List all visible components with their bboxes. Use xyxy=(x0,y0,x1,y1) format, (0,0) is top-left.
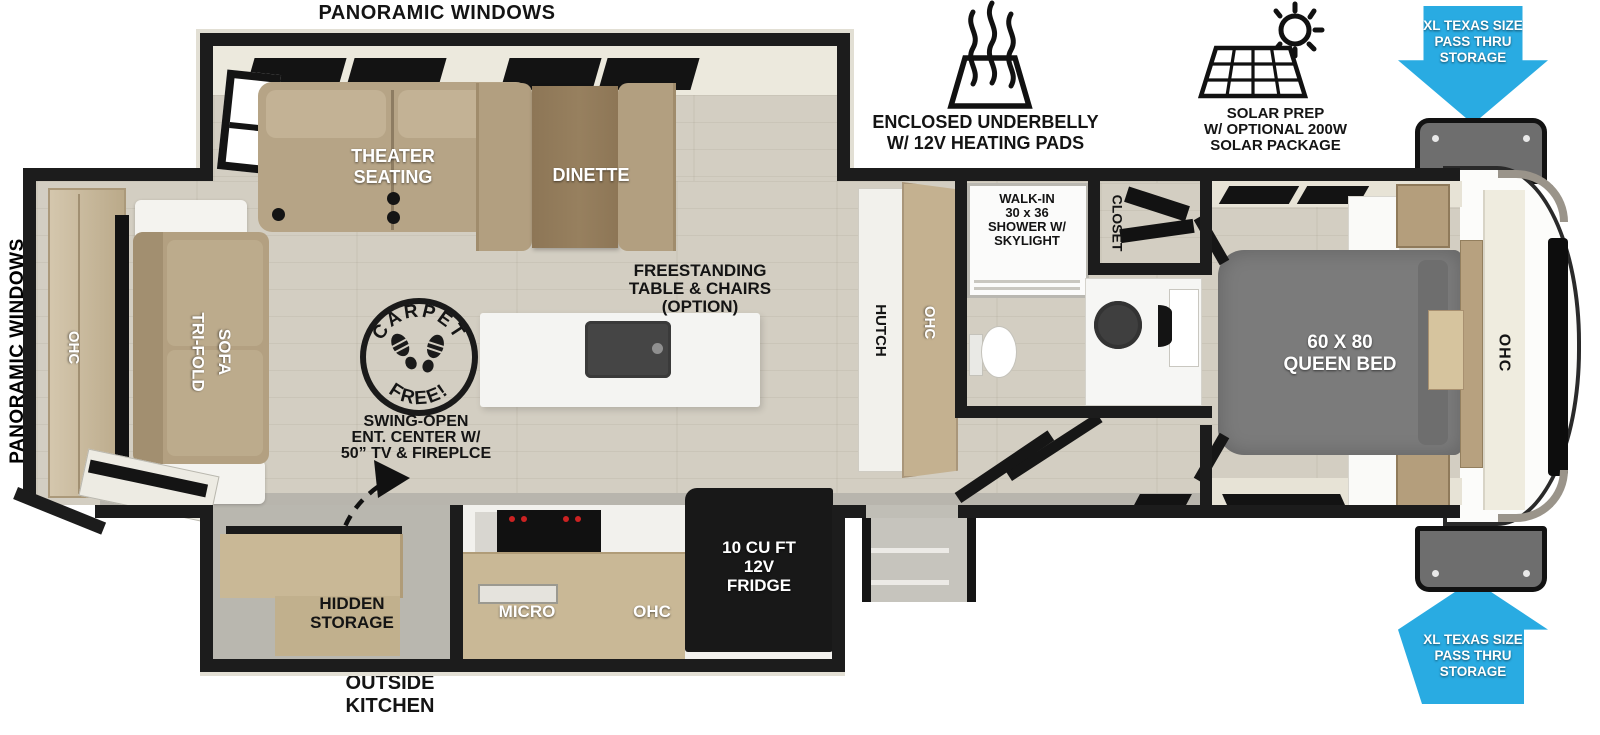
cupholder-icon xyxy=(272,208,285,221)
wall-closet-left xyxy=(1088,181,1100,275)
rear-ohc-label-wrap: OHC xyxy=(54,317,94,377)
cap-trim xyxy=(1498,170,1568,222)
nightstand xyxy=(1428,310,1464,390)
wall-top-main xyxy=(845,168,1460,181)
wall-rear xyxy=(23,168,36,498)
outside-kitchen-wall xyxy=(200,505,845,672)
panoramic-windows-top-label: PANORAMIC WINDOWS xyxy=(297,2,577,24)
queen-bed-label: 60 X 80 QUEEN BED xyxy=(1250,332,1430,376)
shower-tray-line xyxy=(974,287,1080,290)
wall-bottom-c xyxy=(958,505,1460,518)
seat-back xyxy=(266,90,386,138)
faucet-icon xyxy=(652,343,663,354)
hutch-label: HUTCH xyxy=(872,304,889,357)
wardrobe xyxy=(1396,450,1450,512)
wall-bath-bottom xyxy=(955,406,1212,418)
solar-label: SOLAR PREP W/ OPTIONAL 200W SOLAR PACKAG… xyxy=(1178,106,1373,154)
theater-seating-label: THEATER SEATING xyxy=(323,146,463,188)
bootprint-icon xyxy=(419,333,446,376)
wall-rear-top xyxy=(23,168,213,181)
screw-icon xyxy=(1523,570,1530,577)
dinette-bench xyxy=(476,83,532,251)
mirror-cabinet xyxy=(1169,289,1199,367)
hutch-ohc-label: OHC xyxy=(922,305,939,338)
wall-bottom-b xyxy=(845,505,866,518)
closet-label: CLOSET xyxy=(1109,195,1125,252)
wall-bath-left xyxy=(955,181,967,418)
wall-bump-divider xyxy=(450,505,463,659)
screw-icon xyxy=(1523,135,1530,142)
tri-fold-sofa-label-line2: SOFA xyxy=(214,329,234,375)
wall-bedroom-a xyxy=(1200,181,1212,271)
hall-window-icon xyxy=(1134,494,1192,505)
pass-thru-compartment-bottom xyxy=(1415,526,1547,592)
bedroom-window-icon xyxy=(1219,186,1299,204)
rear-tv-strip xyxy=(115,215,129,490)
bedroom-white-block xyxy=(1348,448,1400,506)
dinette-label: DINETTE xyxy=(546,166,636,186)
bedroom-white-block xyxy=(1348,196,1400,256)
wall-bottom-a xyxy=(95,505,205,518)
bedroom-ohc-label-wrap: OHC xyxy=(1483,318,1523,388)
shower-tray-line xyxy=(974,280,1080,283)
heating-pads-icon xyxy=(935,0,1045,110)
kitchen-island xyxy=(480,313,760,407)
hutch-label-wrap: HUTCH xyxy=(858,295,902,365)
wardrobe xyxy=(1396,184,1450,248)
bedroom-ohc-label: OHC xyxy=(1494,334,1512,373)
carpet-free-stamp: CARPET FREE! xyxy=(356,294,482,420)
wall-closet-bottom xyxy=(1088,263,1212,275)
freestanding-option-label: FREESTANDING TABLE & CHAIRS (OPTION) xyxy=(612,262,788,316)
front-cap-window-icon xyxy=(1548,238,1568,476)
pass-thru-bottom-label: XL TEXAS SIZE PASS THRU STORAGE xyxy=(1398,632,1548,680)
cupholder-icon xyxy=(387,192,400,205)
cap-trim xyxy=(1498,470,1568,522)
closet-label-wrap: CLOSET xyxy=(1100,186,1134,260)
carpet-free-top-text: CARPET xyxy=(368,300,469,343)
bath-vanity xyxy=(1085,278,1202,406)
solar-panel-icon xyxy=(1198,0,1333,105)
step-edge xyxy=(871,548,949,553)
pass-thru-arrow-bottom: XL TEXAS SIZE PASS THRU STORAGE xyxy=(1398,580,1548,704)
shower-label: WALK-IN 30 x 36 SHOWER W/ SKYLIGHT xyxy=(965,192,1089,248)
vanity-sink xyxy=(1094,301,1142,349)
outside-kitchen-label: OUTSIDE KITCHEN xyxy=(300,672,480,718)
hutch-ohc-label-wrap: OHC xyxy=(905,290,955,354)
screw-icon xyxy=(1432,570,1439,577)
rear-ohc-label: OHC xyxy=(66,330,83,363)
pass-thru-arrow-top: XL TEXAS SIZE PASS THRU STORAGE xyxy=(1398,6,1548,124)
underbelly-label: ENCLOSED UNDERBELLY W/ 12V HEATING PADS xyxy=(858,112,1113,154)
floorplan-diagram: PANORAMIC WINDOWS PANORAMIC WINDOWS ENCL… xyxy=(0,0,1600,735)
screw-icon xyxy=(1432,135,1439,142)
pass-thru-top-label: XL TEXAS SIZE PASS THRU STORAGE xyxy=(1398,18,1548,66)
entry-steps xyxy=(862,518,976,602)
vanity-shadow xyxy=(1158,305,1172,347)
entry-threshold xyxy=(866,505,958,518)
wall-bedroom-b xyxy=(1200,425,1212,505)
tri-fold-label-wrap2: SOFA xyxy=(184,312,264,392)
bootprint-icon xyxy=(388,331,421,373)
cupholder-icon xyxy=(387,211,400,224)
toilet-bowl xyxy=(981,326,1017,378)
step-edge xyxy=(871,580,949,585)
svg-text:CARPET: CARPET xyxy=(368,300,469,343)
